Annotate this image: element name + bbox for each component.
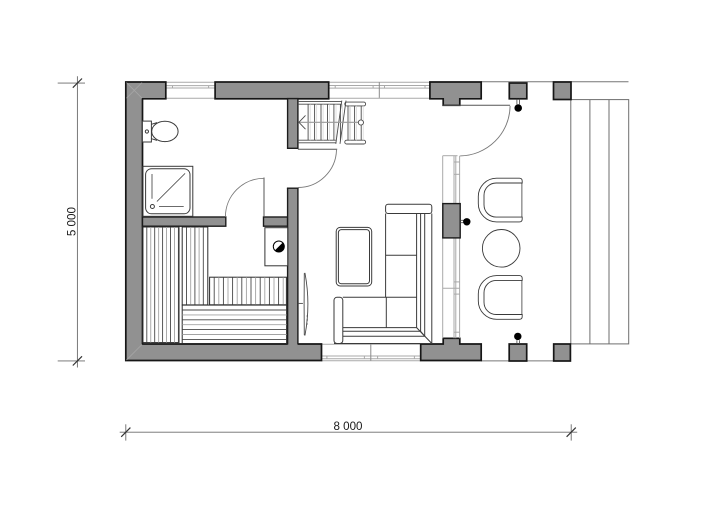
svg-text:8 000: 8 000 bbox=[333, 420, 362, 433]
svg-text:5 000: 5 000 bbox=[65, 207, 78, 236]
